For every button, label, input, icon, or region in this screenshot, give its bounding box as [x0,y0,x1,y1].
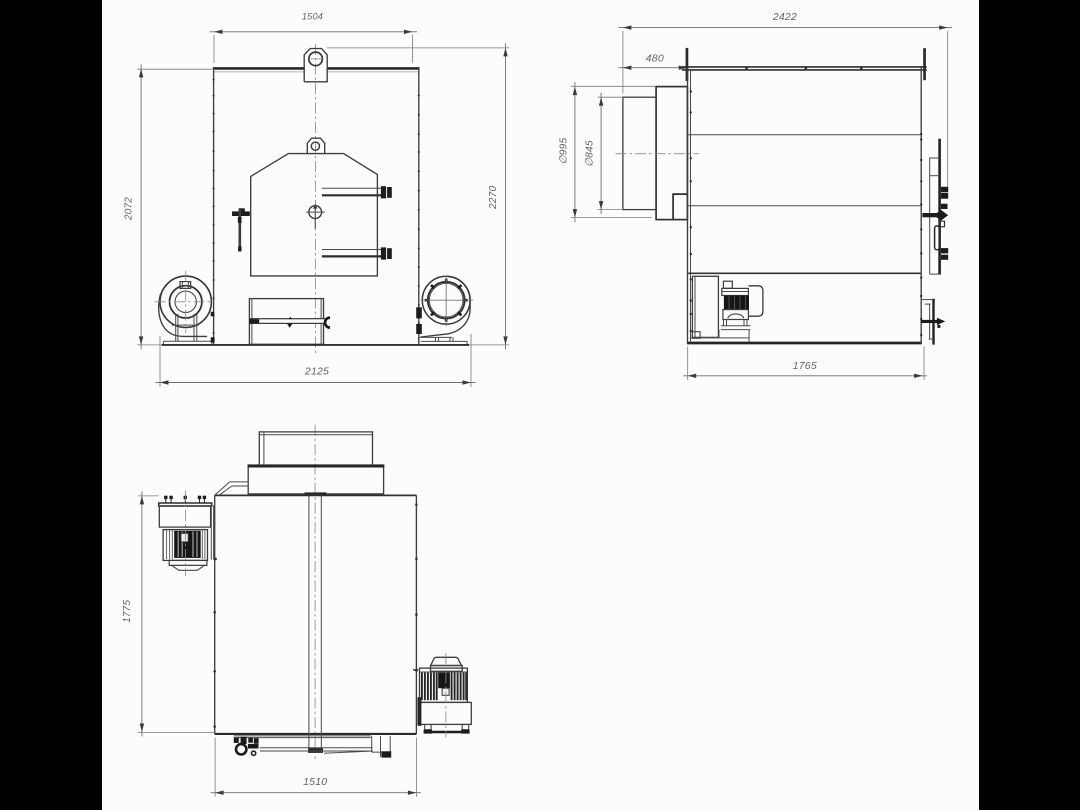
svg-text:∅845: ∅845 [584,140,595,167]
svg-text:1504: 1504 [302,12,323,22]
svg-text:2072: 2072 [124,197,135,221]
svg-text:2270: 2270 [488,186,499,210]
svg-text:2422: 2422 [772,11,797,23]
svg-text:2125: 2125 [304,366,329,378]
svg-text:480: 480 [646,53,664,65]
svg-text:1510: 1510 [303,776,327,788]
svg-text:∅995: ∅995 [559,138,570,165]
svg-text:1765: 1765 [793,360,817,372]
svg-text:1775: 1775 [122,600,133,623]
